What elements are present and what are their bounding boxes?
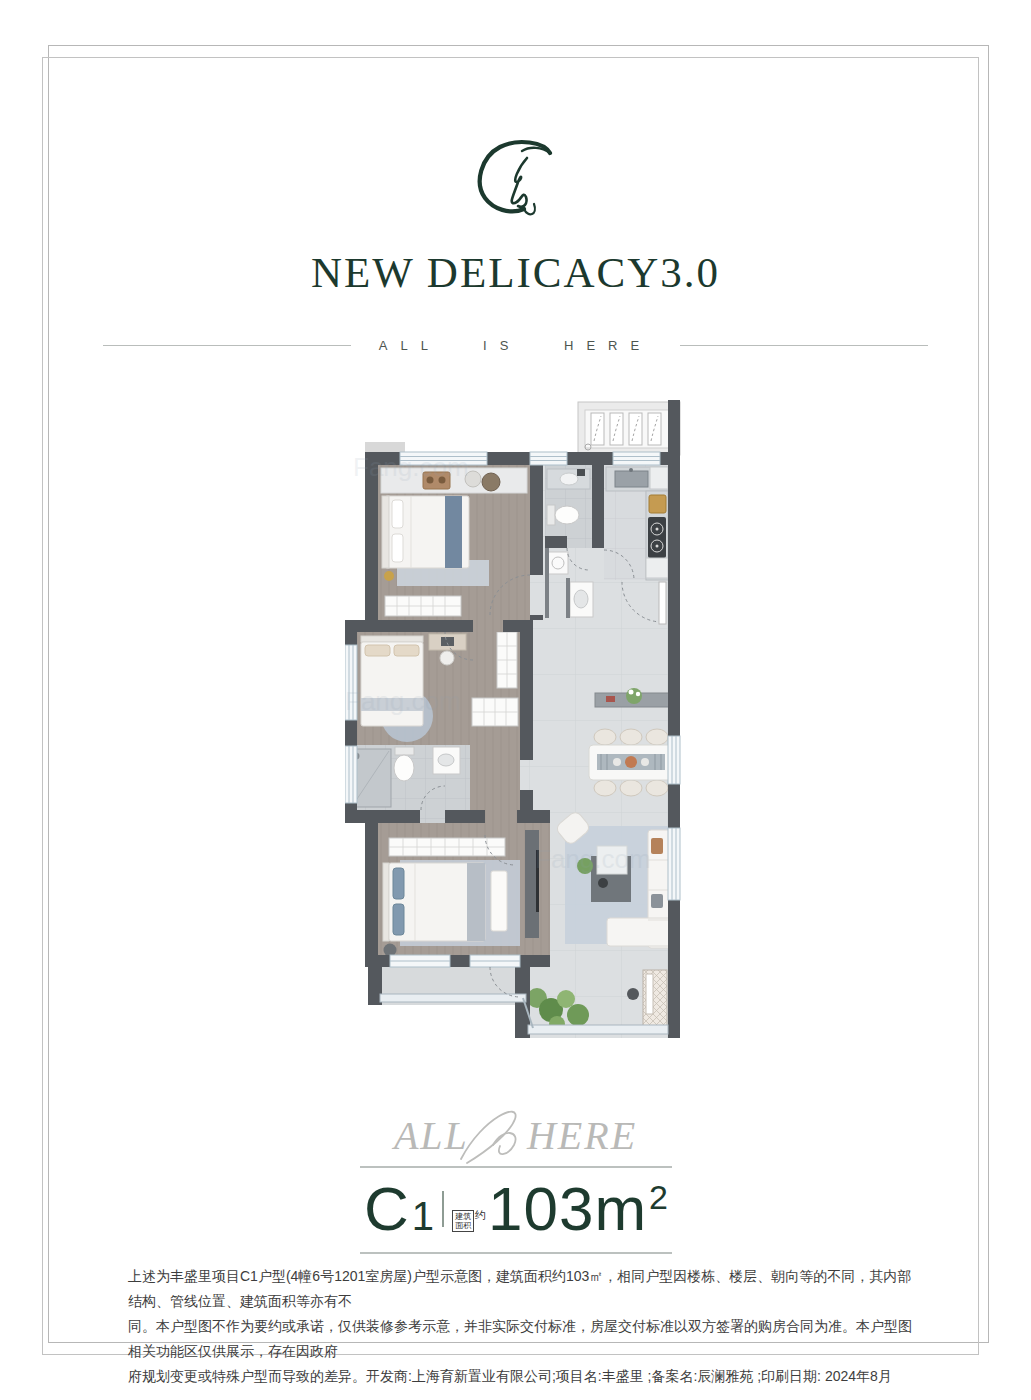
- master-bedroom: [383, 838, 520, 957]
- linen-closet-icon: [472, 698, 518, 726]
- sink-icon: [615, 471, 648, 487]
- spec-block: C 1 建筑 面积 约 103m 2: [360, 1166, 672, 1254]
- window-icon: [345, 746, 357, 803]
- gold-lamp-icon: [384, 571, 394, 581]
- tagline-rule-right: [680, 345, 928, 346]
- stove-icon: [648, 517, 666, 558]
- page-title: NEW DELICACY3.0: [0, 248, 1031, 297]
- floor-plan-drawing: Fang.com Fang.com Fang.com: [345, 398, 700, 1063]
- script-watermark: ALL HERE: [0, 1100, 1031, 1170]
- unit-area: 建筑 面积 约 103m 2: [452, 1180, 668, 1239]
- area-label: 建筑 面积 约: [452, 1210, 486, 1232]
- wardrobe-icon: [385, 596, 461, 616]
- area-approx: 约: [475, 1208, 486, 1223]
- disclaimer-line: 同。本户型图不作为要约或承诺，仅供装修参考示意，并非实际交付标准，房屋交付标准以…: [128, 1314, 914, 1364]
- sink-icon: [433, 747, 460, 774]
- site-watermark: Fang.com: [345, 686, 461, 716]
- ac-unit-icons: [585, 413, 661, 450]
- site-watermark: Fang.com: [535, 844, 651, 874]
- cabinet-icon: [650, 467, 668, 489]
- coffee-machine-icon: [649, 495, 666, 513]
- entry-door-leaf: [659, 582, 666, 624]
- hat-icon: [482, 473, 500, 491]
- window-icon: [668, 828, 680, 900]
- disclaimer: 上述为丰盛里项目C1户型(4幢6号1201室房屋)户型示意图，建筑面积约103㎡…: [128, 1264, 914, 1389]
- bed-icon: [383, 863, 485, 941]
- washer-icon: [548, 552, 568, 574]
- toilet-icon: [547, 505, 579, 525]
- spec-rule-bottom: [360, 1252, 672, 1254]
- unit-digit: 1: [412, 1196, 434, 1236]
- watermark-right: HERE: [527, 1112, 637, 1159]
- window-icon: [668, 736, 680, 784]
- area-label-box: 建筑 面积: [452, 1210, 474, 1232]
- toilet-icon: [394, 747, 414, 781]
- spec-divider: [442, 1191, 444, 1227]
- planter-icon: [627, 988, 639, 1000]
- cabinet-icon: [646, 558, 668, 578]
- floor-plan: Fang.com Fang.com Fang.com: [345, 398, 700, 1063]
- tagline-row: ALL IS HERE: [103, 338, 928, 353]
- spec-row: C 1 建筑 面积 约 103m 2: [360, 1168, 672, 1252]
- ac-balcony: [578, 402, 680, 455]
- area-value: 103m: [488, 1180, 647, 1239]
- dining-area: [589, 688, 673, 796]
- monogram-icon: [470, 138, 562, 224]
- dining-table-icon: [589, 745, 673, 780]
- window-icon: [613, 452, 660, 465]
- disclaimer-line: 府规划变更或特殊户型而导致的差异。开发商:上海育新置业有限公司;项目名:丰盛里 …: [128, 1364, 914, 1389]
- site-watermark: Fang.com: [353, 452, 469, 482]
- brand-logo: [0, 138, 1031, 224]
- area-superscript: 2: [649, 1180, 668, 1214]
- unit-name: C 1: [364, 1178, 434, 1240]
- storage-cabinet-icon: [643, 970, 667, 1028]
- tagline-text: ALL IS HERE: [351, 338, 680, 353]
- tagline-rule-left: [103, 345, 351, 346]
- unit-letter: C: [364, 1178, 409, 1240]
- wardrobe-icon: [497, 632, 517, 688]
- window-icon: [530, 452, 567, 465]
- bench-icon: [491, 871, 507, 931]
- faucet-icon: [577, 469, 585, 476]
- disclaimer-line: 上述为丰盛里项目C1户型(4幢6号1201室房屋)户型示意图，建筑面积约103㎡…: [128, 1264, 914, 1314]
